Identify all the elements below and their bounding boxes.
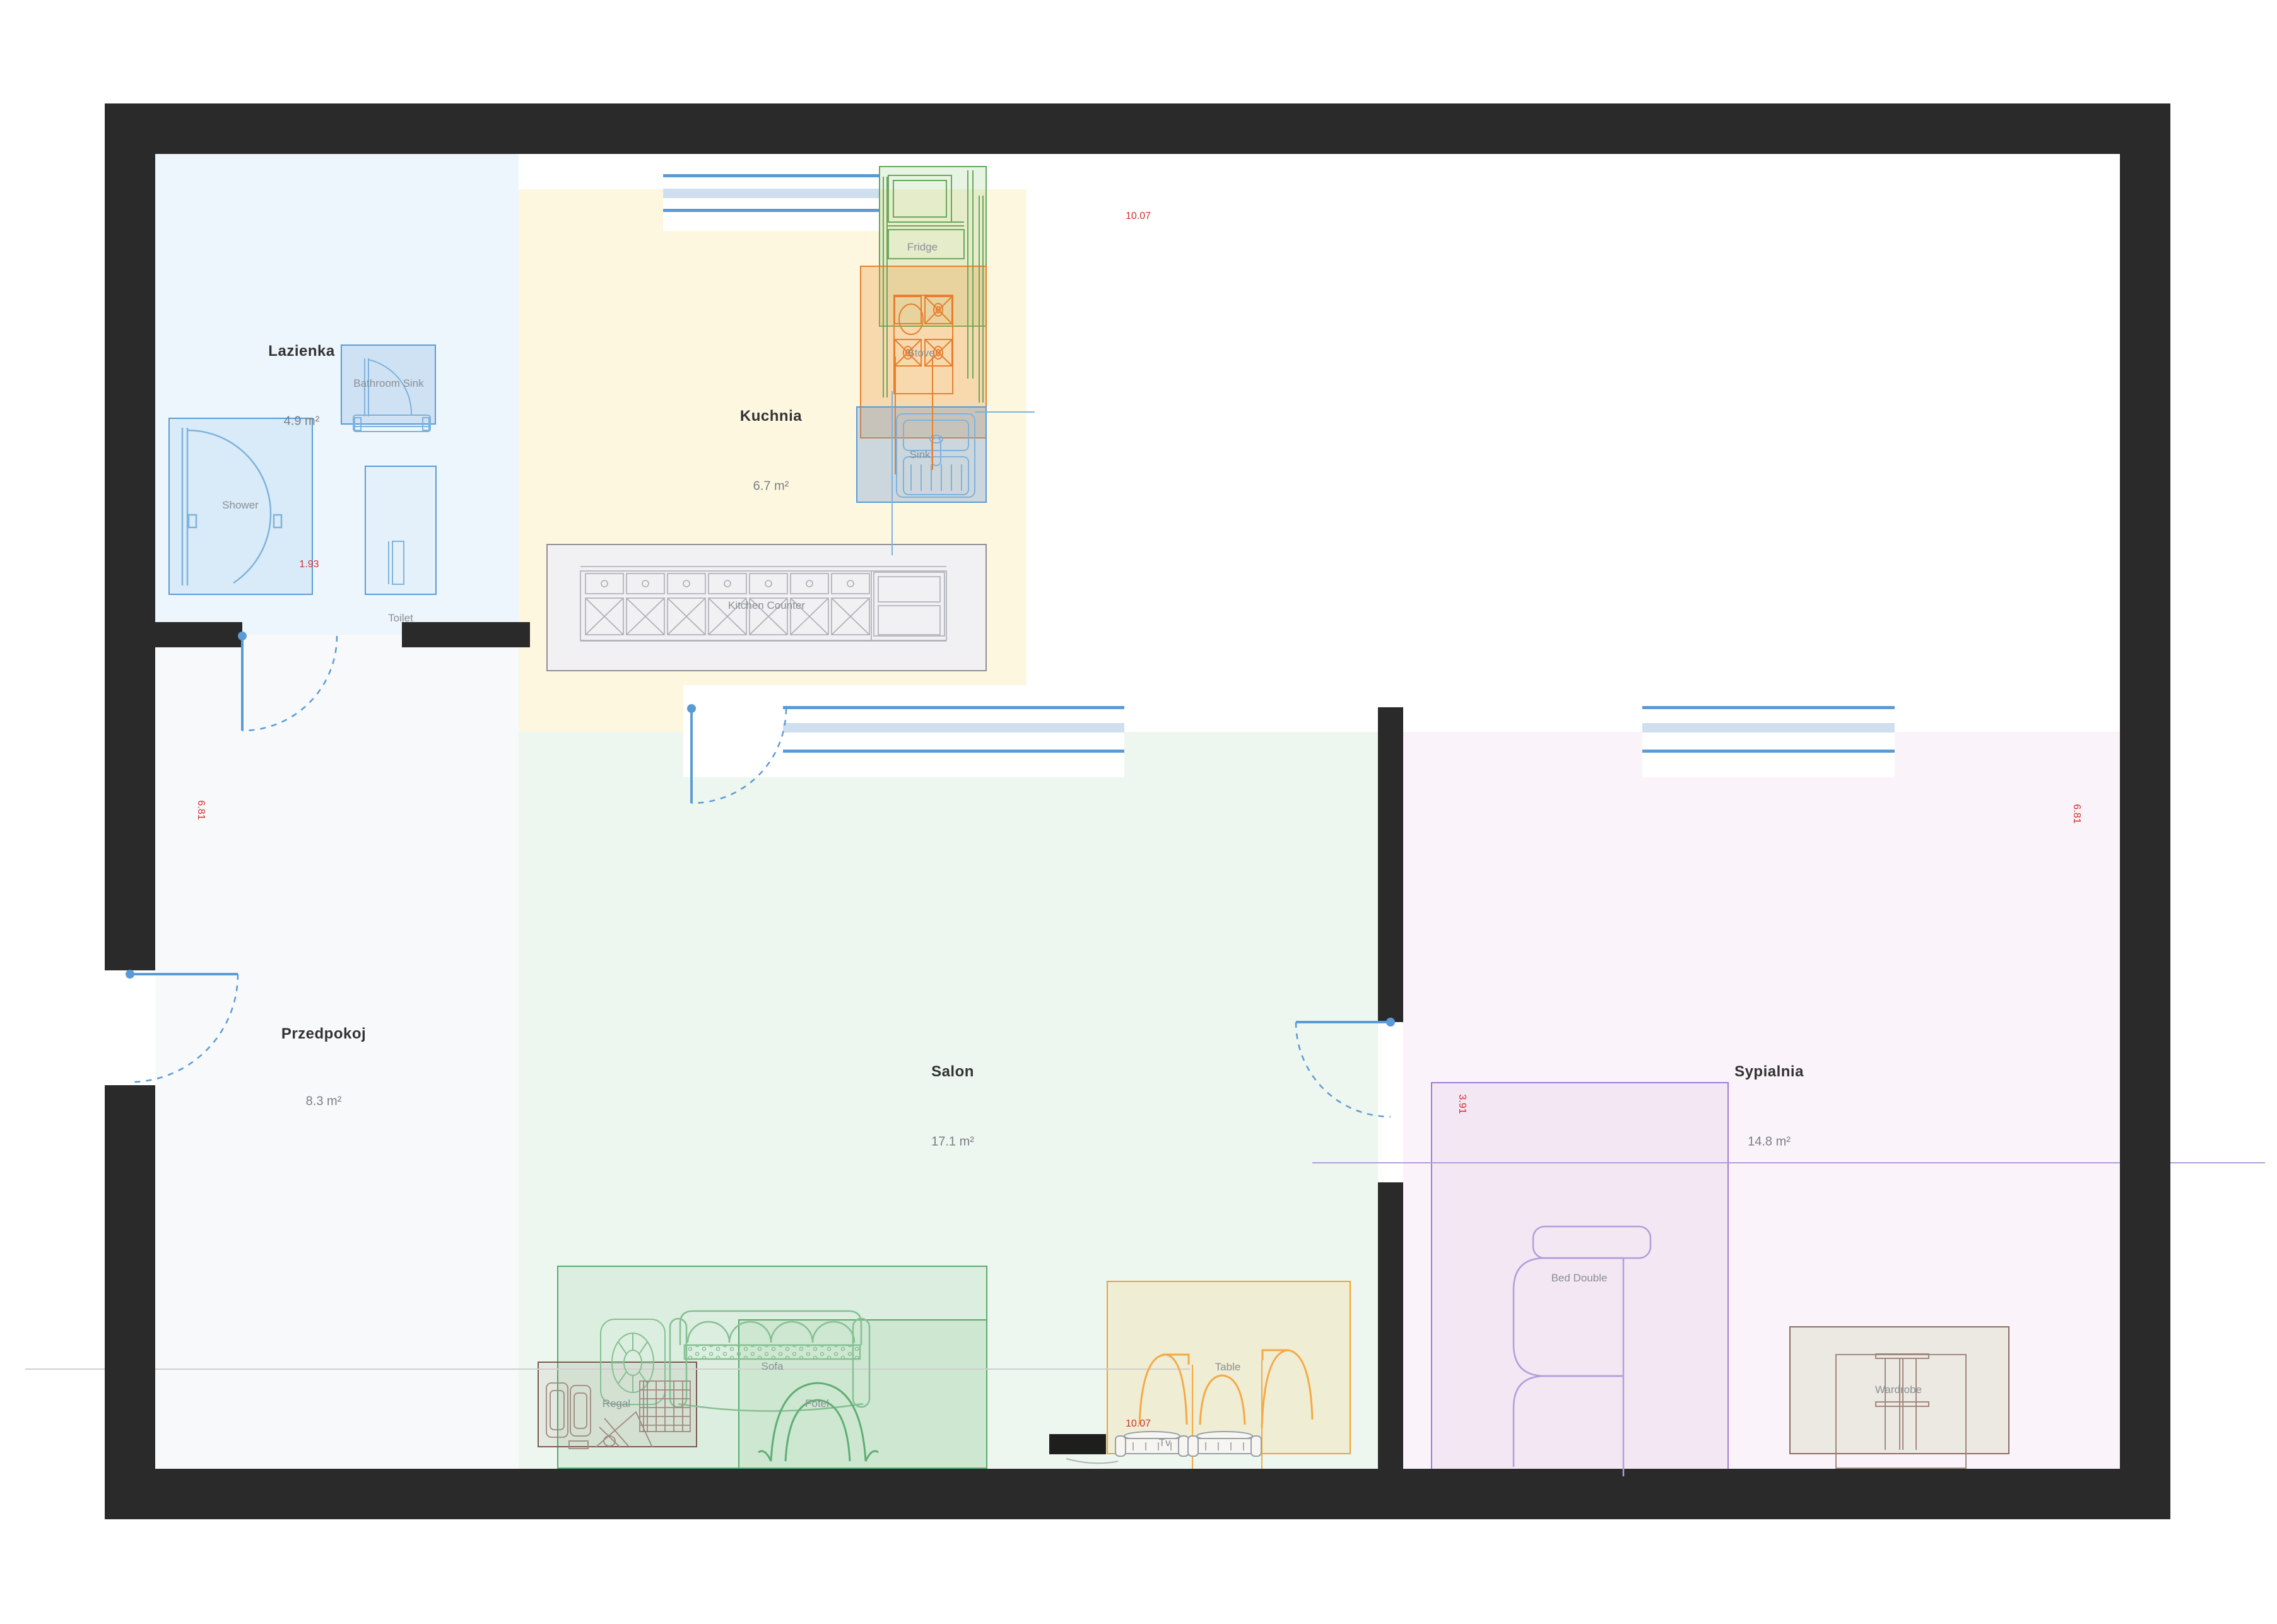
- furniture-label-regal: Regal: [603, 1397, 630, 1410]
- room-area-salon: 17.1 m²: [931, 1135, 974, 1150]
- furniture-label-sink: Sink: [909, 449, 930, 461]
- dim-height-right: 6.81: [2071, 804, 2082, 823]
- room-label-kuchnia: Kuchnia: [740, 408, 802, 425]
- salon-door: [687, 704, 786, 803]
- furniture-label-fotel: Fotel: [805, 1397, 829, 1410]
- dim-height-left: 6.81: [195, 800, 206, 820]
- bed-drawing: [1514, 1227, 1650, 1476]
- furniture-label-stove: Stove: [907, 347, 934, 360]
- bathroom-door: [238, 632, 337, 731]
- toilet-drawing: [389, 541, 404, 584]
- dim-width-bottom: 10.07: [1126, 1418, 1151, 1430]
- room-label-przedpokoj: Przedpokoj: [281, 1025, 366, 1043]
- furniture-label-wardrobe: Wardrobe: [1875, 1384, 1922, 1396]
- round-rug-drawing: [601, 1319, 665, 1404]
- room-label-lazienka: Lazienka: [268, 343, 334, 360]
- dim-bed-zone-width: 3.91: [1456, 1094, 1468, 1114]
- tv-bench-drawing: [1115, 1432, 1261, 1456]
- regal-drawing: [546, 1381, 690, 1449]
- furniture-label-sofa: Sofa: [762, 1360, 784, 1373]
- floorplan-page: { "title": "Apartment floor plan", "room…: [0, 0, 2277, 1624]
- linework-layer: [0, 0, 2277, 1624]
- bedroom-door: [1296, 1018, 1395, 1117]
- room-area-sypialnia: 14.8 m²: [1748, 1135, 1791, 1150]
- fotel-drawing: [758, 1383, 878, 1461]
- furniture-label-table: Table: [1215, 1361, 1241, 1374]
- furniture-label-fridge: Fridge: [907, 241, 938, 254]
- room-label-salon: Salon: [931, 1063, 974, 1081]
- bathroom-sink-drawing: [353, 358, 430, 432]
- tv-bar-curve: [1066, 1459, 1118, 1463]
- entry-door: [126, 970, 238, 1082]
- wardrobe-drawing: [1836, 1354, 1966, 1468]
- room-area-lazienka: 4.9 m²: [284, 415, 320, 429]
- dim-width-top: 10.07: [1126, 211, 1151, 222]
- dim-shower-width: 1.93: [299, 559, 319, 570]
- furniture-label-bathroom-sink: Bathroom Sink: [353, 377, 424, 390]
- room-area-przedpokoj: 8.3 m²: [306, 1095, 342, 1109]
- room-area-kuchnia: 6.7 m²: [753, 480, 789, 494]
- furniture-label-tv: Tv: [1159, 1437, 1171, 1449]
- furniture-label-bed: Bed Double: [1551, 1272, 1608, 1285]
- stove-drawing: [894, 295, 953, 394]
- room-label-sypialnia: Sypialnia: [1734, 1063, 1804, 1081]
- furniture-label-toilet: Toilet: [388, 612, 413, 625]
- furniture-label-kitchen-counter: Kitchen Counter: [728, 599, 805, 612]
- furniture-label-shower: Shower: [222, 499, 259, 512]
